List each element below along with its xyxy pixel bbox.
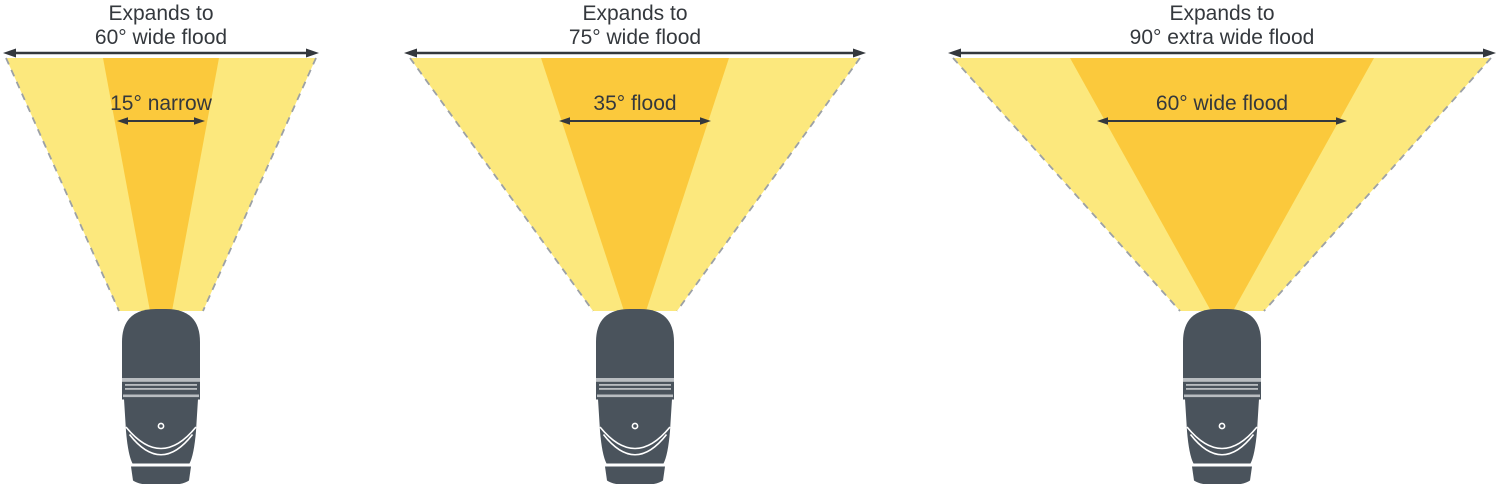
beam-angle-diagram: Expands to 60° wide flood 15° narrow Exp… — [0, 0, 1500, 484]
beam-title-line1: Expands to — [1169, 2, 1274, 25]
flashlight-icon — [596, 309, 674, 484]
arrowhead-left — [948, 49, 961, 58]
beam-title-line2: 60° wide flood — [95, 26, 227, 49]
beam-title-line2: 90° extra wide flood — [1130, 26, 1315, 49]
arrowhead-left — [404, 49, 417, 58]
diagram-narrow-beam: Expands to 60° wide flood 15° narrow — [3, 2, 319, 484]
flashlight-icon — [122, 309, 200, 484]
beam-label: 35° flood — [593, 92, 676, 115]
expand-width-arrow — [404, 49, 866, 58]
diagram-extra-wide-beam: Expands to 90° extra wide flood 60° wide… — [948, 2, 1496, 484]
beam-label: 15° narrow — [110, 92, 213, 115]
beam-title-line2: 75° wide flood — [569, 26, 701, 49]
beam-title-line1: Expands to — [108, 2, 213, 25]
arrowhead-right — [853, 49, 866, 58]
arrowhead-right — [1483, 49, 1496, 58]
expand-width-arrow — [948, 49, 1496, 58]
expand-width-arrow — [3, 49, 319, 58]
beam-label: 60° wide flood — [1156, 92, 1288, 115]
beam-title-line1: Expands to — [582, 2, 687, 25]
flashlight-icon — [1183, 309, 1261, 484]
arrowhead-right — [306, 49, 319, 58]
arrowhead-left — [3, 49, 16, 58]
diagram-flood-beam: Expands to 75° wide flood 35° flood — [404, 2, 866, 484]
beam-diagram-canvas: Expands to 60° wide flood 15° narrow Exp… — [0, 0, 1500, 484]
